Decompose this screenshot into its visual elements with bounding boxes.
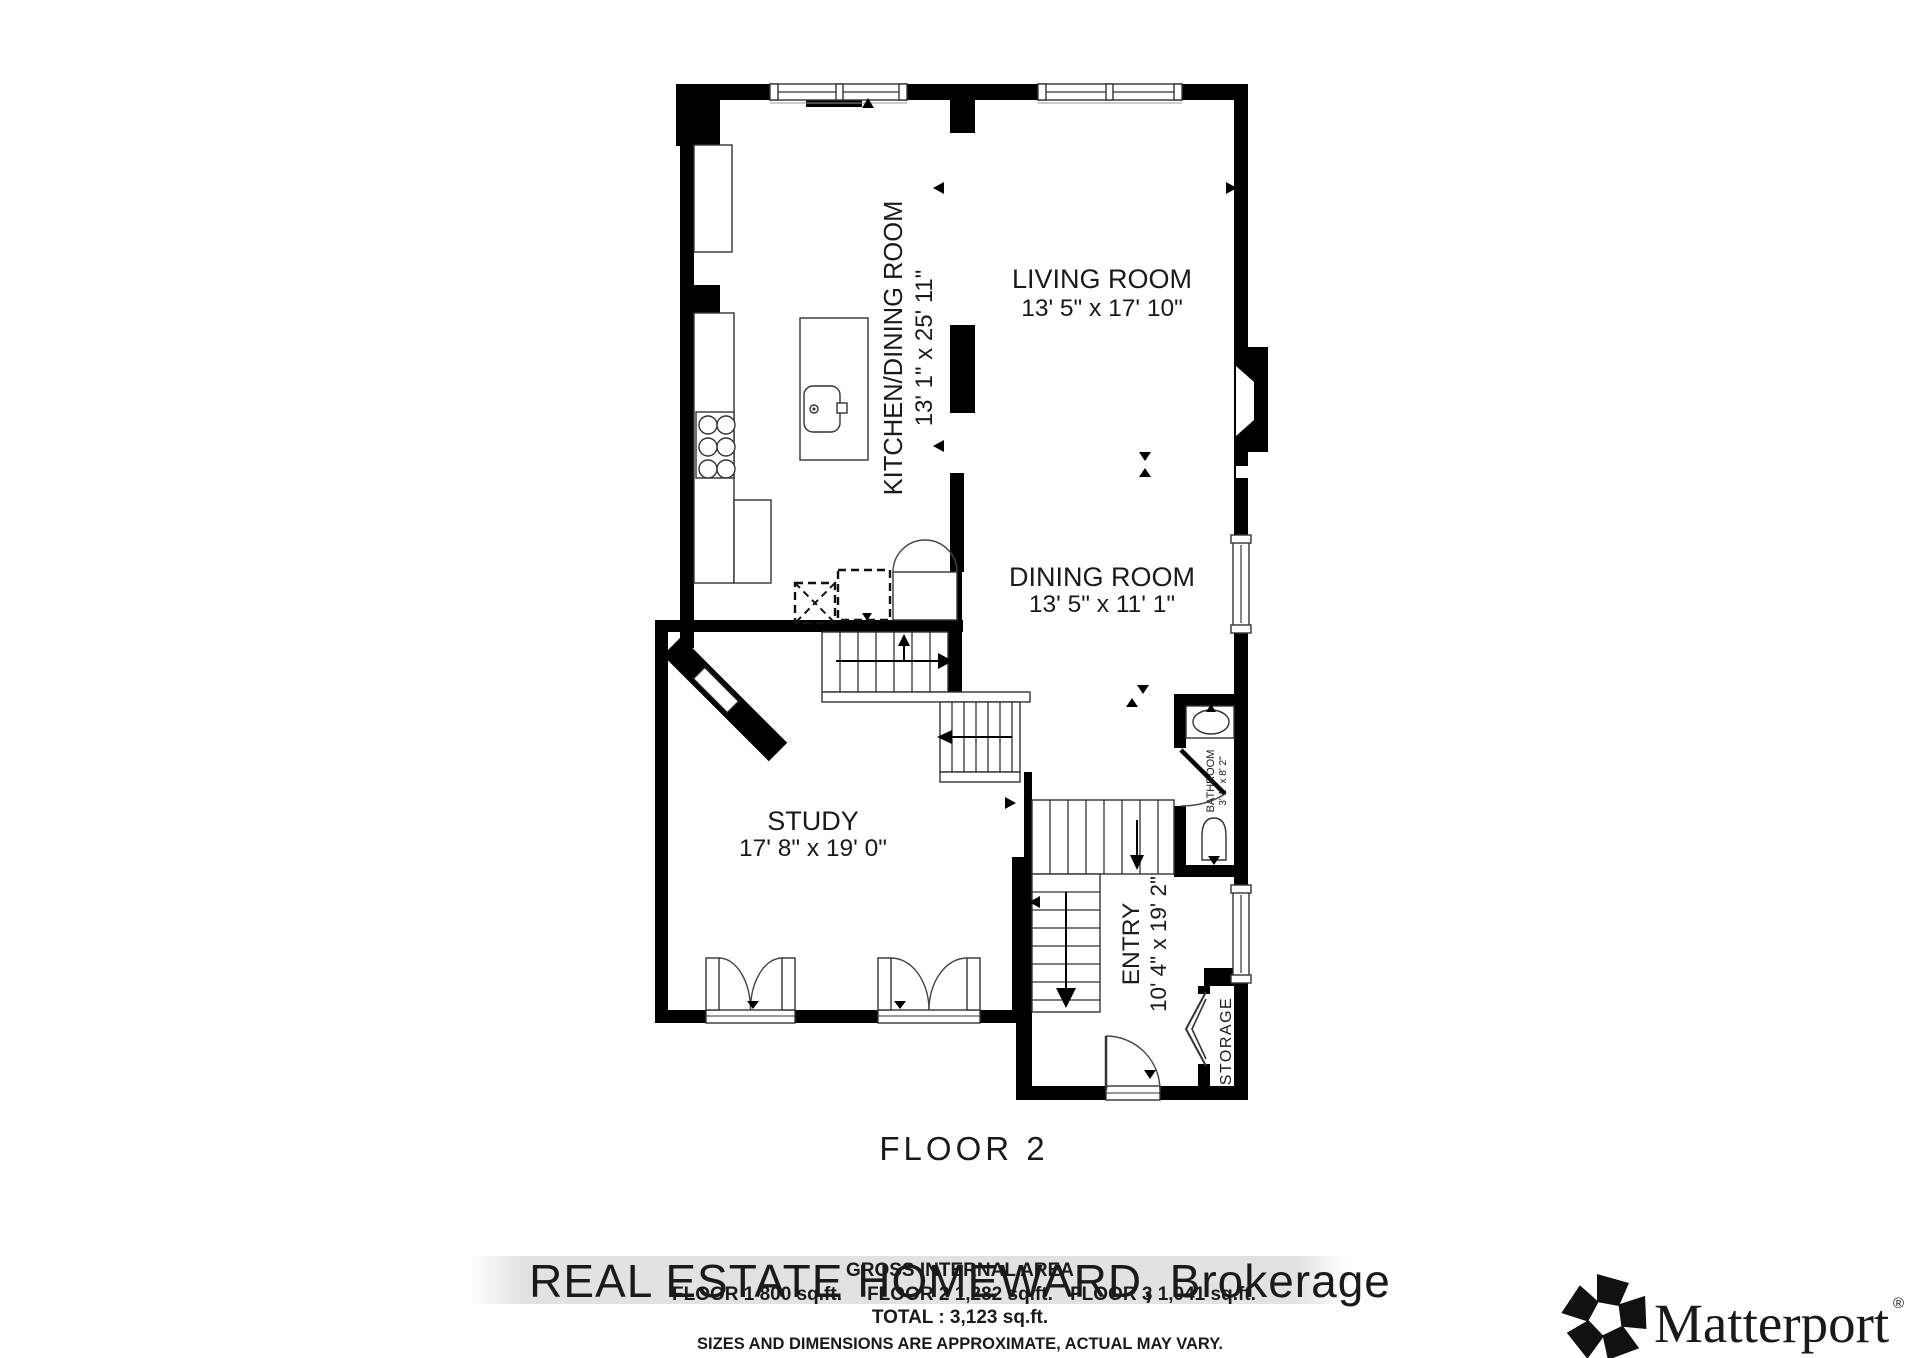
counter-end xyxy=(734,500,771,583)
label-living-dims: 13' 5" x 17' 10" xyxy=(1021,295,1183,322)
floor2-area: FLOOR 2 1,282 sq.ft. xyxy=(867,1284,1053,1305)
toilet xyxy=(1202,818,1226,860)
walls xyxy=(655,84,1268,1100)
label-kitchen-name: KITCHEN/DINING ROOM xyxy=(880,201,908,496)
label-entry-name: ENTRY xyxy=(1118,903,1145,986)
skylight-dashed-box xyxy=(795,583,835,623)
stair-landing-lower xyxy=(940,772,1020,782)
total-area: TOTAL : 3,123 sq.ft. xyxy=(872,1307,1048,1328)
label-storage-name: STORAGE xyxy=(1218,997,1235,1085)
overhead-dashed-box xyxy=(838,570,890,620)
registered-mark: ® xyxy=(1893,1295,1904,1312)
counter-upper xyxy=(694,145,732,252)
window-dining-right xyxy=(1231,535,1251,633)
bathroom-sink xyxy=(1193,710,1229,734)
stair-landing-upper xyxy=(822,692,1030,702)
footer: REAL ESTATE HOMEWARD, Brokerage GROSS IN… xyxy=(470,1255,1391,1353)
floor1-area: FLOOR 1 800 sq.ft. xyxy=(672,1284,842,1305)
label-dining-dims: 13' 5" x 11' 1" xyxy=(1029,591,1175,618)
window-top-left xyxy=(770,84,907,103)
kitchen-island xyxy=(800,318,868,460)
window-top-right xyxy=(1038,84,1182,103)
matterport-wordmark: Matterport xyxy=(1654,1293,1889,1354)
study-double-door-left xyxy=(706,958,795,1023)
label-entry-dims: 10' 4" x 19' 2" xyxy=(1146,876,1171,1012)
entry-door xyxy=(1106,1036,1160,1100)
main-staircase xyxy=(822,632,1030,782)
label-study-name: STUDY xyxy=(767,806,859,836)
floor-title: FLOOR 2 xyxy=(879,1130,1048,1167)
disclaimer: SIZES AND DIMENSIONS ARE APPROXIMATE, AC… xyxy=(697,1335,1223,1353)
stove xyxy=(696,412,735,478)
floor3-area: FLOOR 3 1,041 sq.ft. xyxy=(1070,1284,1256,1305)
storage-bifold-door xyxy=(1186,992,1206,1066)
label-living-name: LIVING ROOM xyxy=(1012,264,1192,294)
label-bathroom-name: BATHROOM xyxy=(1205,750,1217,813)
window-entry-right xyxy=(1231,885,1251,983)
gross-area-title: GROSS INTERNAL AREA xyxy=(846,1260,1074,1281)
matterport-icon xyxy=(1561,1274,1655,1358)
study-double-door-right xyxy=(878,958,980,1023)
label-bathroom-dims: 3' 1" x 8' 2" xyxy=(1218,756,1229,806)
label-study-dims: 17' 8" x 19' 0" xyxy=(739,835,887,862)
matterport-logo: Matterport ® xyxy=(1561,1274,1904,1358)
label-kitchen-dims: 13' 1" x 25' 11" xyxy=(911,270,938,427)
floor-plan-svg: LIVING ROOM 13' 5" x 17' 10" DINING ROOM… xyxy=(0,0,1920,1358)
closet-double-door xyxy=(893,540,957,620)
label-dining-name: DINING ROOM xyxy=(1009,562,1195,592)
